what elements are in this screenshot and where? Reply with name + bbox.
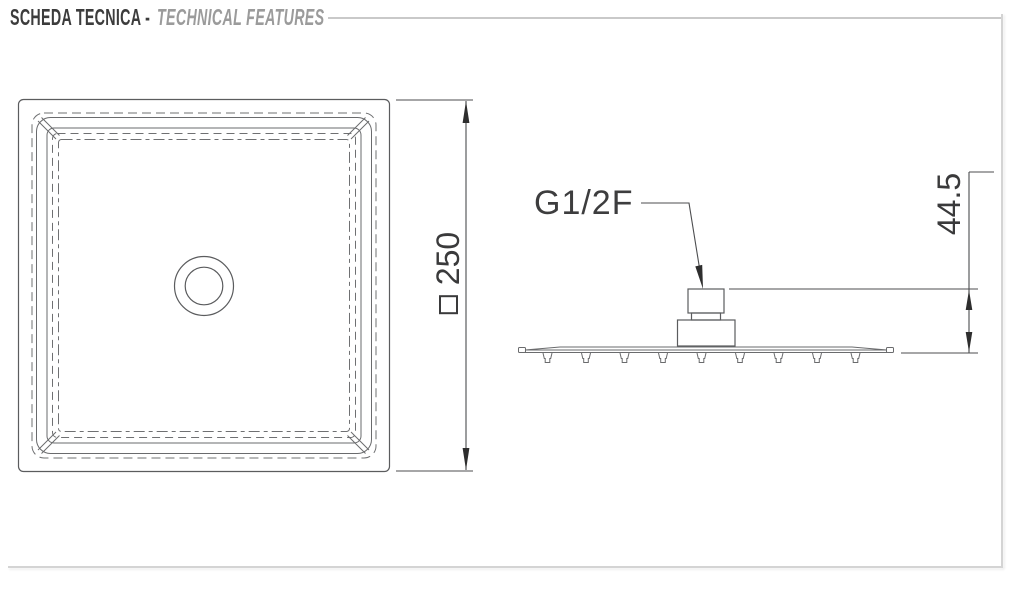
spray-frame-inner	[47, 128, 361, 443]
technical-drawing	[0, 0, 1024, 592]
arrow-down-icon	[463, 448, 470, 470]
arrow-up-icon	[463, 101, 470, 123]
leader-arrow	[641, 203, 703, 289]
nozzle	[582, 353, 591, 363]
hidden-edge-inner-1	[53, 134, 356, 438]
arrow-down-icon	[966, 332, 973, 352]
technical-sheet-page: SCHEDA TECNICA - TECHNICAL FEATURES	[0, 0, 1024, 592]
height-dimension-label: 44.5	[933, 173, 965, 235]
nozzle	[697, 353, 706, 363]
width-dimension-value: 250	[432, 232, 464, 285]
nozzle	[813, 353, 822, 363]
hidden-edge-inner-2	[59, 140, 350, 432]
nozzle	[620, 353, 629, 363]
spray-nozzles	[543, 353, 860, 363]
width-dimension-label: 250	[432, 232, 464, 314]
inlet-connector	[678, 289, 736, 346]
water-inlet-circle-inner	[185, 267, 223, 305]
spray-frame-outer	[37, 118, 372, 454]
connection-label: G1/2F	[534, 186, 633, 220]
shower-plate-profile	[519, 347, 894, 353]
outer-plate-outline	[19, 100, 390, 472]
nozzle	[851, 353, 860, 363]
arrow-up-icon	[966, 290, 973, 310]
leader-arrowhead-icon	[695, 265, 703, 289]
nozzle	[543, 353, 552, 363]
nozzle	[774, 353, 783, 363]
top-view-drawing	[19, 100, 474, 472]
square-dimension-symbol	[439, 295, 458, 314]
nozzle	[659, 353, 668, 363]
nozzle	[736, 353, 745, 363]
hidden-edge-outer	[32, 113, 376, 458]
corner-seams	[38, 118, 369, 454]
water-inlet-circle-outer	[175, 257, 234, 316]
height-dimension-value: 44.5	[933, 173, 965, 235]
